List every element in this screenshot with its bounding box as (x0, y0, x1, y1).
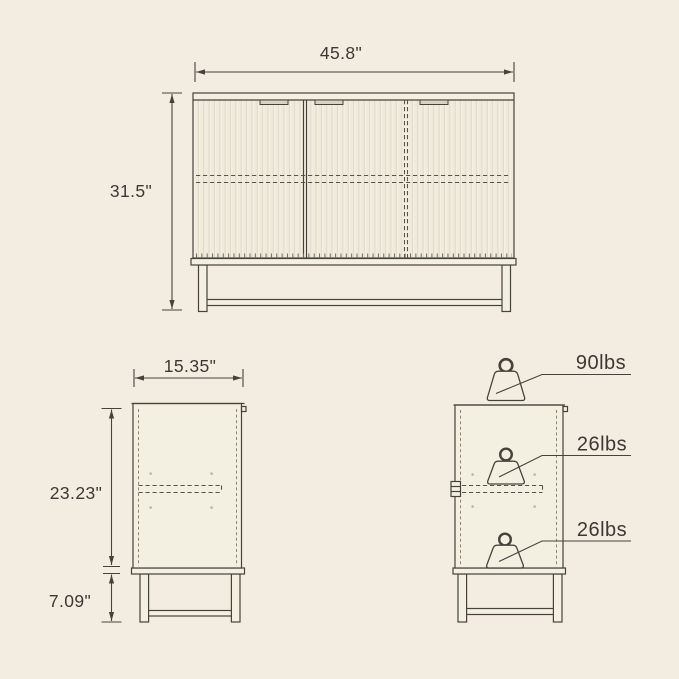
side-depth-label: 15.35" (164, 356, 216, 376)
door-handle (420, 100, 448, 105)
side-depth-dimension: 15.35" (134, 356, 243, 387)
arrow-right-icon (504, 69, 513, 74)
capacity-right-leg (553, 574, 562, 622)
cam-hole-dot (150, 507, 152, 509)
cam-hole-dot (472, 474, 474, 476)
front-height-dimension: 31.5" (110, 93, 182, 310)
arrow-down-icon (169, 300, 174, 309)
capacity-view: 90lbs 26lbs 26lbs (451, 352, 631, 622)
arrow-up-icon (109, 575, 114, 584)
weight-icon-handle (500, 359, 513, 372)
front-door-right (408, 101, 514, 258)
front-right-leg (502, 265, 511, 312)
front-width-dimension: 45.8" (195, 43, 514, 82)
front-view: 45.8" 31.5" (110, 43, 516, 312)
side-right-leg (231, 574, 240, 622)
side-stretcher (143, 611, 237, 617)
hinge-body (451, 482, 461, 497)
capacity-middle-label: 26lbs (577, 434, 627, 456)
weight-icon (487, 371, 524, 400)
capacity-top-label: 90lbs (576, 352, 626, 374)
capacity-stretcher (461, 609, 561, 615)
side-door-edge-tab (242, 407, 247, 412)
side-leg-height-label: 7.09" (49, 591, 91, 611)
cam-hole-dot (211, 507, 213, 509)
front-width-label: 45.8" (320, 43, 362, 63)
front-door-left (194, 101, 304, 258)
capacity-cabinet (451, 405, 568, 622)
side-left-leg (140, 574, 149, 622)
capacity-top: 90lbs (487, 352, 631, 401)
capacity-bottom-rail (453, 568, 566, 574)
capacity-door-edge-tab (563, 407, 568, 412)
arrow-up-icon (109, 410, 114, 419)
front-stretcher (202, 300, 507, 306)
front-door-middle (307, 101, 405, 258)
cam-hole-dot (472, 506, 474, 508)
door-handle (315, 100, 343, 105)
arrow-down-icon (109, 556, 114, 565)
diagram-svg: 45.8" 31.5" (0, 0, 679, 679)
arrow-down-icon (109, 612, 114, 621)
side-leg-height-dimension: 7.09" (49, 574, 122, 623)
side-view: 15.35" 23.23" 7.09" (49, 356, 246, 622)
side-bottom-rail (132, 568, 245, 574)
capacity-left-leg (458, 574, 467, 622)
arrow-left-icon (135, 375, 144, 380)
cam-hole-dot (211, 473, 213, 475)
front-left-leg (199, 265, 208, 312)
capacity-bottom-label: 26lbs (577, 519, 627, 541)
arrow-right-icon (233, 375, 242, 380)
arrow-up-icon (169, 94, 174, 103)
side-body-height-dimension: 23.23" (50, 409, 122, 567)
furniture-dimension-diagram: 45.8" 31.5" (0, 0, 679, 679)
front-bottom-rail (191, 259, 516, 266)
door-handle (260, 100, 288, 105)
cam-hole-dot (534, 506, 536, 508)
cam-hole-dot (534, 474, 536, 476)
cam-hole-dot (150, 473, 152, 475)
arrow-left-icon (196, 69, 205, 74)
side-body-height-label: 23.23" (50, 483, 102, 503)
front-height-label: 31.5" (110, 181, 152, 201)
side-cabinet (132, 404, 247, 623)
front-cabinet (191, 93, 516, 312)
hinge-detail (451, 482, 461, 497)
